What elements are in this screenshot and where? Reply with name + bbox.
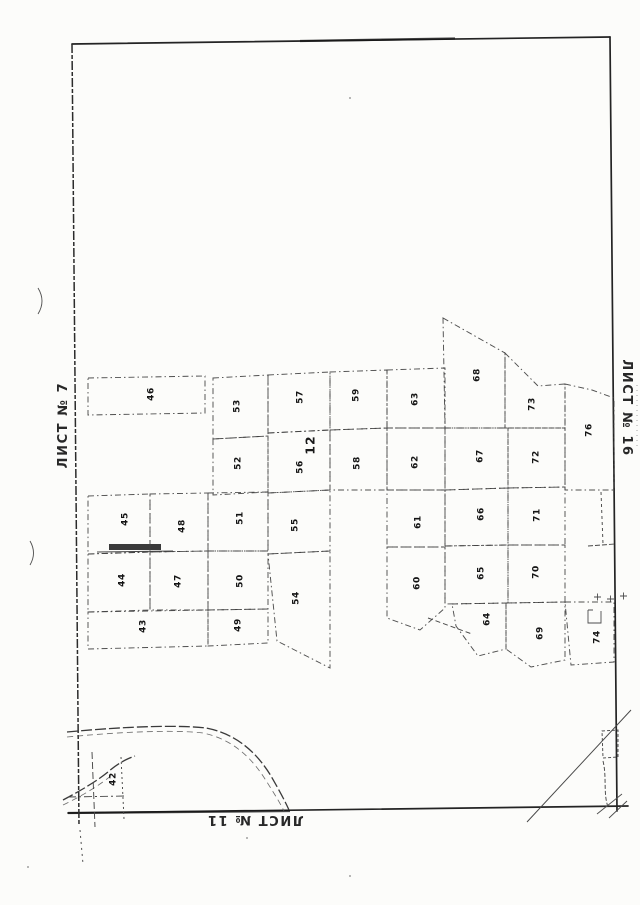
cadastral-map: 4243444546474849505152535455565758596061… (0, 0, 640, 905)
plot-59: 59 (330, 370, 387, 430)
plot-number: 68 (473, 368, 483, 382)
plot-53: 53 (213, 375, 268, 439)
plot-number: 54 (292, 591, 302, 605)
plot-boundary (268, 551, 330, 668)
plot-42: 42 (109, 772, 119, 786)
plot-55: 55 (268, 490, 330, 554)
plot-76: 76 (565, 384, 614, 490)
scan-speck (27, 866, 29, 868)
margin-arc-upper (38, 288, 42, 314)
plot-number: 60 (413, 576, 423, 590)
ramp-curve-inner (63, 775, 112, 805)
plot-number: 69 (536, 626, 546, 640)
plot-57: 57 (268, 372, 330, 433)
plot-67: 67 (445, 428, 508, 490)
frame-top-overlay (300, 39, 455, 42)
plot-number: 65 (477, 566, 487, 580)
scanned-page: 4243444546474849505152535455565758596061… (0, 0, 640, 905)
corridor-line (428, 618, 472, 634)
plot-43: 43 (88, 610, 208, 649)
plot-number: 50 (236, 574, 246, 588)
edge-curve (603, 761, 608, 807)
sheet-label-right: ЛИСТ № 16 (619, 359, 634, 456)
plot-number: 59 (352, 388, 362, 402)
scan-speck (246, 837, 248, 839)
plot-51: 51 (208, 492, 268, 551)
frame-left-border (72, 44, 79, 826)
plot-number: 73 (528, 397, 538, 411)
plot42-boundary-left (92, 752, 95, 827)
plot42-boundary-right (121, 757, 124, 819)
plot-number: 56 (296, 460, 306, 474)
plot-70: 70 (508, 545, 565, 603)
plot-44: 44 (88, 552, 150, 612)
plot-69: 69 (506, 602, 565, 667)
plot-58: 58 (330, 428, 387, 490)
plot-number: 44 (118, 573, 128, 587)
plot-number: 48 (178, 519, 188, 533)
plot-63: 63 (387, 368, 445, 428)
plot-number: 42 (109, 772, 119, 786)
plot-number: 61 (414, 515, 424, 529)
plot-layer: 4243444546474849505152535455565758596061… (88, 318, 614, 786)
quarter-number: 12 (303, 435, 318, 454)
plot-48: 48 (150, 493, 208, 552)
frame-left-tail (80, 830, 83, 864)
plot-number: 58 (353, 456, 363, 470)
plot-number: 57 (296, 390, 306, 404)
plot-number: 47 (174, 574, 184, 588)
plot74-building-symbol (588, 610, 601, 623)
plot-50: 50 (208, 551, 268, 610)
frame-right-border (610, 37, 617, 811)
plot-number: 74 (593, 630, 603, 644)
plot-73: 73 (505, 353, 565, 428)
plot-60: 60 (387, 547, 445, 630)
plot-boundary (505, 353, 565, 428)
boundary-tick-horizontal (588, 544, 615, 546)
scan-speck (349, 97, 351, 99)
plot-66: 66 (445, 488, 508, 546)
plot-number: 66 (477, 507, 487, 521)
plot-number: 43 (139, 619, 149, 633)
plot-62: 62 (387, 428, 445, 490)
plot-54: 54 (268, 551, 330, 668)
plot-number: 53 (233, 399, 243, 413)
ramp-curve-outer (63, 756, 135, 800)
plot-56: 56 (268, 430, 330, 493)
plot-46: 46 (88, 376, 205, 415)
plot-number: 72 (532, 450, 542, 464)
plot-74: 74 (565, 602, 614, 665)
survey-cross-marks (594, 593, 627, 603)
sheet-label-bottom: ЛИСТ № 11 (206, 812, 303, 827)
building-bar (109, 544, 161, 550)
plot-number: 64 (483, 612, 493, 626)
plot-61: 61 (387, 490, 445, 547)
plot-number: 67 (476, 449, 486, 463)
plot-number: 55 (291, 518, 301, 532)
plot-49: 49 (208, 609, 268, 646)
plot-number: 45 (121, 512, 131, 526)
boundary-tick-vertical (601, 492, 603, 544)
plot-number: 63 (411, 392, 421, 406)
plot-number: 76 (585, 423, 595, 437)
plot-number: 71 (533, 508, 543, 522)
plot-number: 51 (236, 511, 246, 525)
plot-72: 72 (508, 428, 565, 488)
plot42-boundary-bottom (68, 796, 126, 797)
plot-number: 62 (411, 455, 421, 469)
scan-speck (349, 875, 351, 877)
road-curve-outer (67, 726, 289, 810)
sheet-label-left: ЛИСТ № 7 (56, 382, 71, 469)
road-curve-inner (67, 731, 284, 811)
plot-number: 46 (147, 387, 157, 401)
margin-arc-lower (30, 541, 34, 565)
plot-number: 49 (234, 618, 244, 632)
plot-52: 52 (213, 436, 268, 495)
plot-68: 68 (443, 318, 505, 428)
plot-boundary (565, 602, 614, 665)
plot-number: 52 (234, 456, 244, 470)
diagonal-road-line (527, 710, 631, 822)
plot-number: 70 (532, 565, 542, 579)
plot-47: 47 (150, 551, 208, 610)
plot-65: 65 (445, 545, 508, 604)
plot-71: 71 (508, 487, 565, 545)
